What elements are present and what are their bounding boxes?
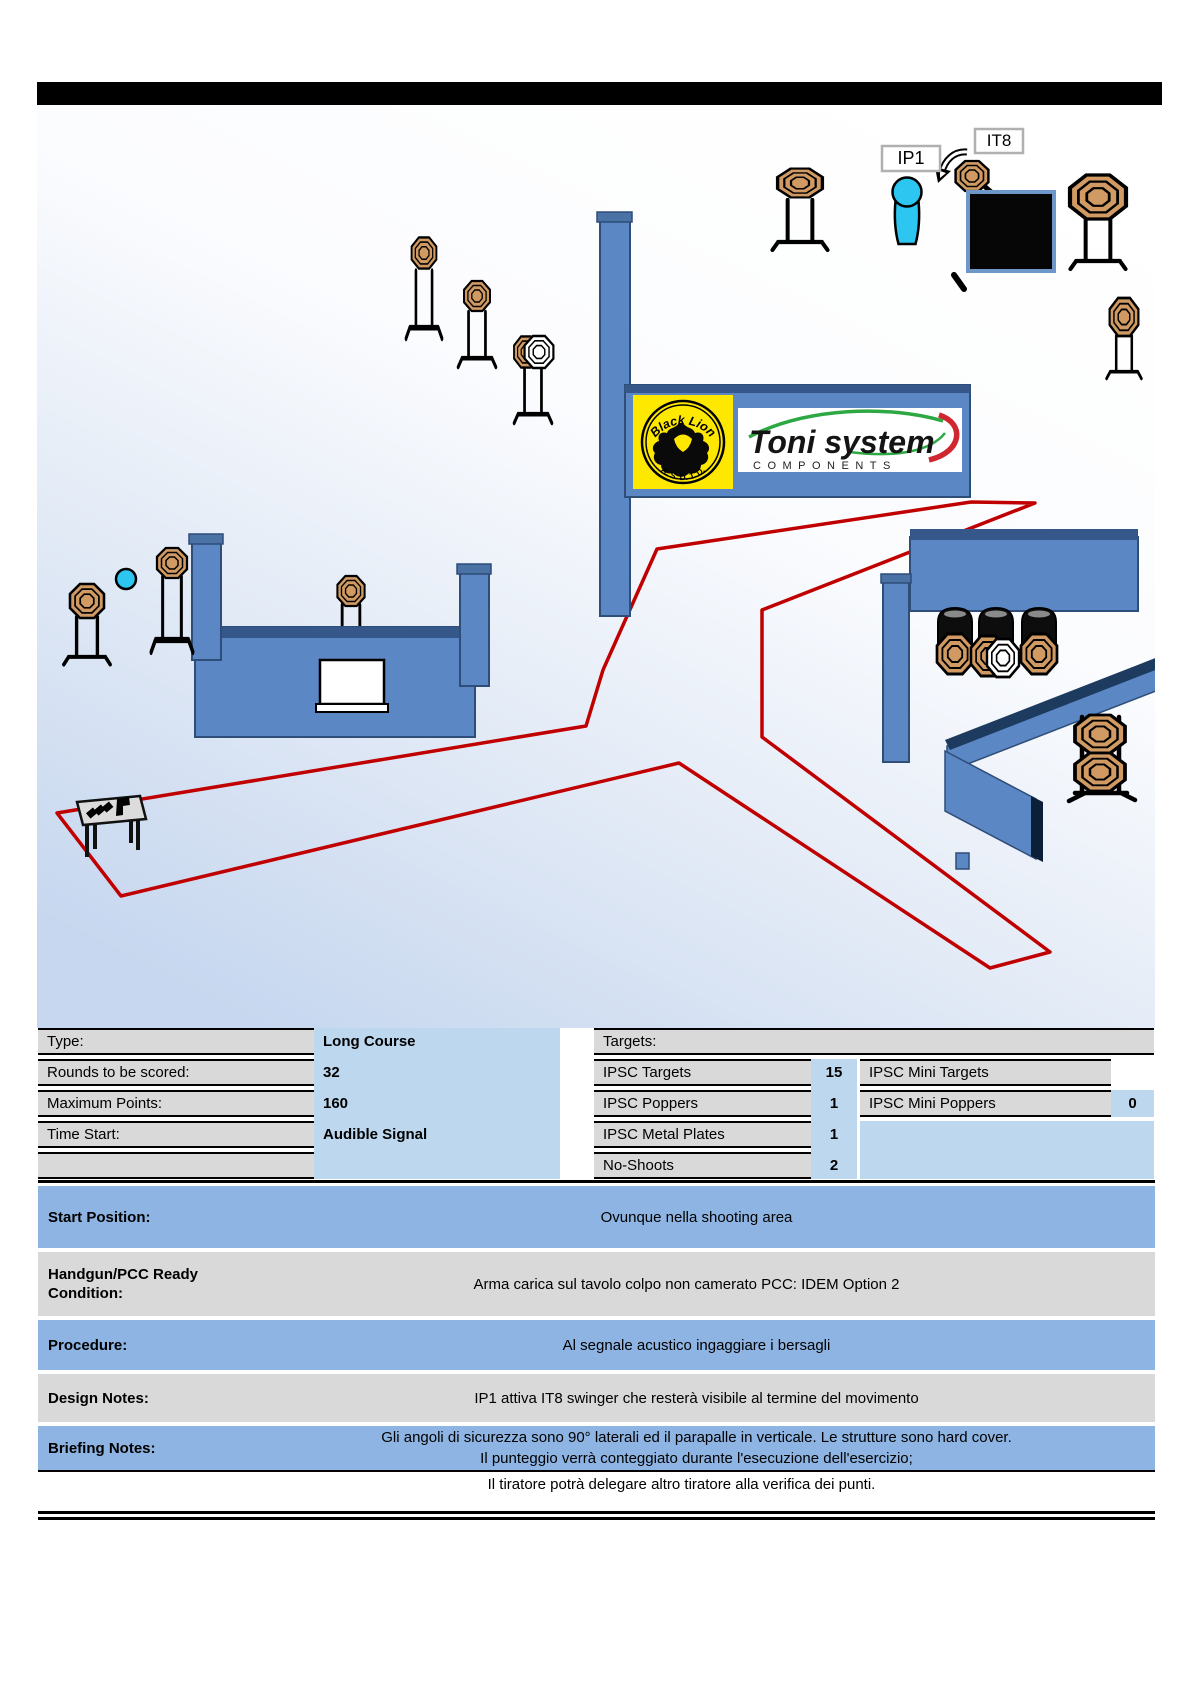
info-label: Maximum Points: [38,1090,314,1117]
briefing-line-1: Gli angoli di sicurezza sono 90° lateral… [258,1427,1135,1448]
black-lion-logo: Black Lion A. S. D. T. D. [633,395,733,489]
target-type-label: IPSC Metal Plates [594,1121,811,1148]
no-shoot-target [525,336,554,368]
briefing-line-2: Il punteggio verrà conteggiato durante l… [258,1448,1135,1469]
ipsc-target [937,634,973,674]
section-text: Arma carica sul tavolo colpo non camerat… [238,1274,1155,1295]
it8-label: IT8 [975,129,1023,153]
toni-system-text: Toni system [749,424,935,460]
table-bottom-rule [38,1180,1155,1183]
mini-target-label: IPSC Mini Poppers [860,1090,1111,1117]
info-label: Type: [38,1028,314,1055]
section-label: Briefing Notes: [38,1439,258,1458]
wall-right-horizontal [910,529,1138,611]
mini-target-count: 0 [1111,1090,1154,1117]
sponsor-banner: Black Lion A. S. D. T. D. Toni system CO… [625,385,970,497]
info-value: 32 [314,1059,560,1086]
target-count: 2 [811,1152,857,1179]
info-value: 160 [314,1090,560,1117]
section-label: Handgun/PCC Ready Condition: [38,1265,238,1303]
section-text: Al segnale acustico ingaggiare i bersagl… [258,1335,1155,1356]
info-value: Long Course [314,1028,560,1055]
target-count: 15 [811,1059,857,1086]
targets-right-fill [860,1121,1154,1179]
barrels-row [937,608,1057,677]
info-value: Audible Signal [314,1121,560,1148]
ipsc-target [1021,634,1057,674]
target-count: 1 [811,1121,857,1148]
section-text: Ovunque nella shooting area [258,1207,1155,1228]
section-text: IP1 attiva IT8 swinger che resterà visib… [258,1388,1155,1409]
ipsc-target [1075,753,1125,791]
section-ready-condition: Handgun/PCC Ready Condition: Arma carica… [38,1252,1155,1316]
section-start-position: Start Position: Ovunque nella shooting a… [38,1186,1155,1248]
header-bar [37,82,1162,105]
svg-text:IT8: IT8 [987,131,1012,150]
toni-system-logo: Toni system COMPONENTS [738,408,962,472]
section-text: Gli angoli di sicurezza sono 90° lateral… [258,1427,1155,1469]
wall-window-port [320,660,384,704]
targets-header: Targets: [594,1028,1154,1055]
section-design-notes: Design Notes: IP1 attiva IT8 swinger che… [38,1374,1155,1422]
info-label: Rounds to be scored: [38,1059,314,1086]
toni-components-text: COMPONENTS [753,460,897,472]
wall-right-post [881,574,911,762]
popper-top-view [116,569,136,589]
target-count: 1 [811,1090,857,1117]
briefing-line-3: Il tiratore potrà delegare altro tirator… [38,1472,1155,1493]
no-shoot-target [987,639,1019,677]
section-briefing-notes: Briefing Notes: Gli angoli di sicurezza … [38,1426,1155,1470]
info-label-empty [38,1152,314,1179]
briefing-footer-line: Il tiratore potrà delegare altro tirator… [38,1470,1155,1510]
section-label: Start Position: [38,1208,258,1227]
section-label: Procedure: [38,1336,258,1355]
target-type-label: IPSC Targets [594,1059,811,1086]
svg-text:IP1: IP1 [897,148,924,168]
target-type-label: IPSC Poppers [594,1090,811,1117]
ipsc-target [1075,715,1125,753]
ipsc-popper-ip1 [893,178,922,245]
target-type-label: No-Shoots [594,1152,811,1179]
section-label: Design Notes: [38,1389,258,1408]
stage-diagram: Black Lion A. S. D. T. D. Toni system CO… [37,105,1155,1028]
page-bottom-rule [38,1511,1155,1520]
ip1-label: IP1 [882,146,940,171]
section-procedure: Procedure: Al segnale acustico ingaggiar… [38,1320,1155,1370]
info-label: Time Start: [38,1121,314,1148]
mini-target-label: IPSC Mini Targets [860,1059,1111,1086]
